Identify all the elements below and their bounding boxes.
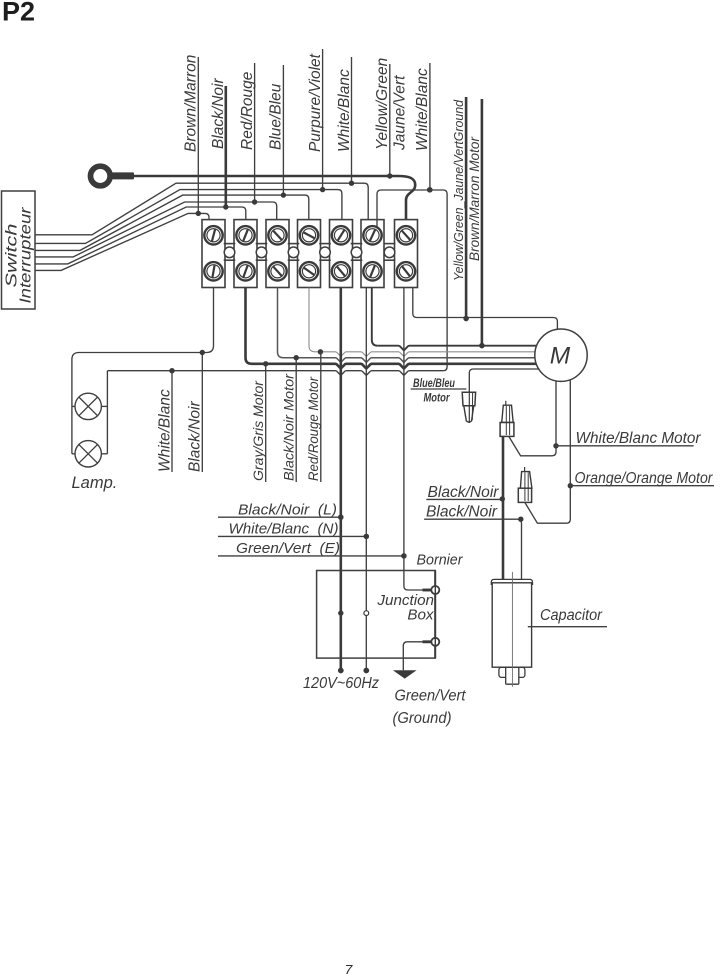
svg-text:Bornier: Bornier: [417, 552, 464, 569]
svg-text:7: 7: [345, 962, 354, 974]
svg-text:Jaune/Vert: Jaune/Vert: [392, 75, 409, 151]
svg-text:Blue/Bleu: Blue/Bleu: [268, 83, 285, 150]
svg-text:Red/Rouge Motor: Red/Rouge Motor: [306, 376, 322, 481]
svg-text:Black/Noir: Black/Noir: [428, 484, 500, 501]
svg-text:Brown/Marron: Brown/Marron: [183, 55, 200, 152]
svg-text:P2: P2: [2, 0, 35, 27]
svg-text:Brown/Marron Motor: Brown/Marron Motor: [467, 136, 482, 261]
svg-text:White/Blanc (N): White/Blanc (N): [229, 521, 339, 538]
svg-text:Black/Noir: Black/Noir: [187, 401, 204, 472]
svg-text:Gray/Gris Motor: Gray/Gris Motor: [251, 380, 267, 481]
svg-text:Black/Noir: Black/Noir: [210, 78, 227, 149]
svg-text:Interrupteur: Interrupteur: [18, 207, 35, 304]
svg-text:Blue/Bleu: Blue/Bleu: [413, 378, 455, 390]
svg-text:Capacitor: Capacitor: [540, 607, 603, 624]
svg-text:Orange/Orange Motor: Orange/Orange Motor: [575, 470, 714, 487]
svg-text:120V~60Hz: 120V~60Hz: [303, 675, 379, 692]
svg-text:Lamp.: Lamp.: [72, 474, 118, 492]
svg-text:(Ground): (Ground): [393, 710, 452, 727]
svg-text:White/Blanc: White/Blanc: [336, 69, 353, 152]
svg-text:Box: Box: [407, 606, 435, 623]
svg-text:Yellow/Green_Jaune/VertGround: Yellow/Green_Jaune/VertGround: [451, 99, 466, 281]
svg-text:Red/Rouge: Red/Rouge: [239, 71, 256, 150]
svg-text:Yellow/Green: Yellow/Green: [374, 58, 391, 150]
svg-text:Green/Vert (E): Green/Vert (E): [236, 540, 340, 557]
svg-text:Black/Noir: Black/Noir: [426, 503, 498, 520]
svg-text:White/Blanc Motor: White/Blanc Motor: [576, 430, 702, 447]
svg-text:White/Blanc: White/Blanc: [414, 68, 431, 151]
svg-text:Black/Noir (L): Black/Noir (L): [238, 501, 337, 518]
svg-text:Purpure/Violet: Purpure/Violet: [307, 53, 324, 152]
svg-text:White/Blanc: White/Blanc: [156, 389, 173, 472]
svg-text:M: M: [550, 343, 571, 370]
svg-text:Black/Noir Motor: Black/Noir Motor: [282, 373, 298, 481]
svg-text:Motor: Motor: [424, 393, 450, 405]
svg-text:Green/Vert: Green/Vert: [395, 688, 467, 705]
